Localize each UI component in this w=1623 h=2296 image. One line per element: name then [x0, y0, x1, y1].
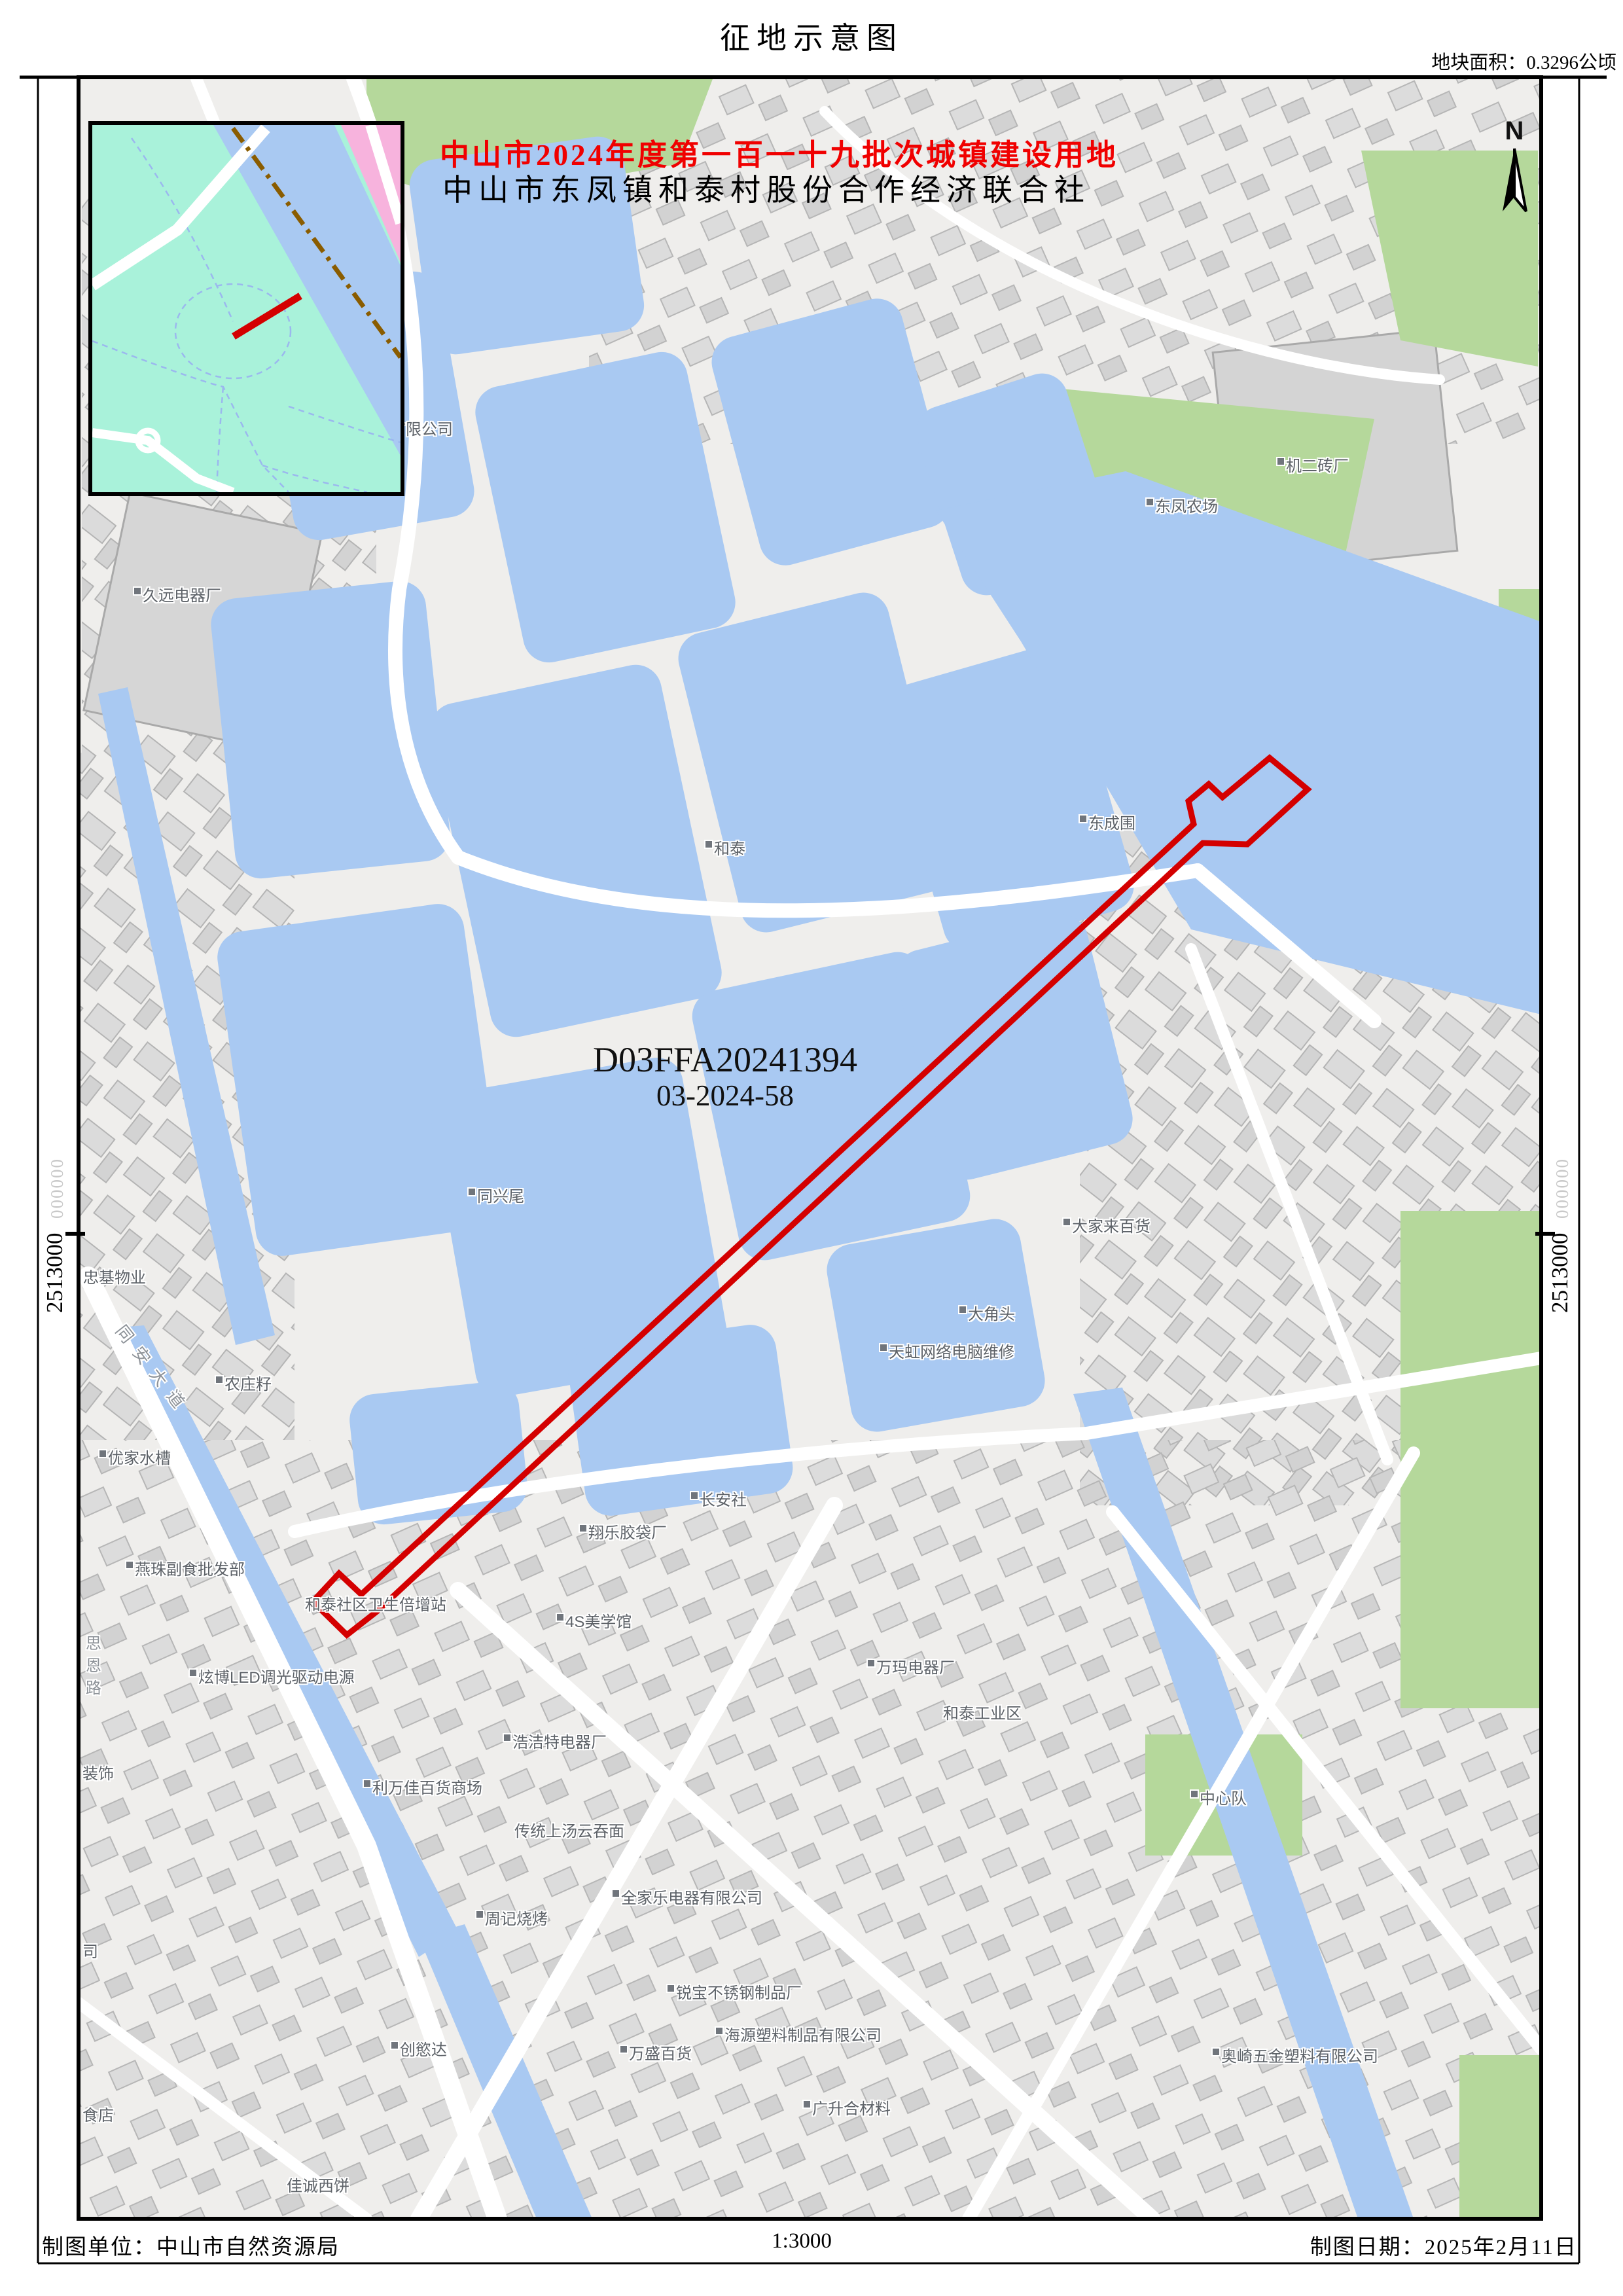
place-marker-icon — [190, 1670, 196, 1676]
place-label: 司 — [82, 1944, 98, 1961]
place-label: 奥崎五金塑料有限公司 — [1213, 2049, 1378, 2066]
parcel-code: D03FFA20241394 — [593, 1039, 857, 1080]
place-marker-icon — [476, 1911, 483, 1918]
place-label: 食店 — [82, 2108, 114, 2125]
land-acquisition-map-page: 征地示意图 地块面积：0.3296公顷 — [0, 0, 1623, 2296]
place-marker-icon — [668, 1985, 674, 1992]
place-marker-icon — [804, 2101, 810, 2108]
plot-area-note: 地块面积：0.3296公顷 — [1431, 47, 1616, 75]
place-marker-icon — [620, 2046, 627, 2053]
place-label: 创慾达 — [391, 2042, 447, 2059]
place-label: 海源塑料制品有限公司 — [716, 2028, 882, 2045]
north-arrow-icon — [1497, 146, 1531, 218]
right-ghost-coord: 000000 — [1552, 1158, 1573, 1219]
place-marker-icon — [1063, 1219, 1070, 1225]
place-marker-icon — [716, 2028, 722, 2034]
place-marker-icon — [469, 1189, 475, 1195]
left-coord-label: 2513000 — [42, 1233, 68, 1314]
locator-inset-map[interactable] — [88, 121, 404, 496]
place-label: 全家乐电器有限公司 — [613, 1890, 762, 1907]
map-canvas[interactable]: 中山市2024年度第一百一十九批次城镇建设用地 中山市东凤镇和泰村股份合作经济联… — [0, 0, 1623, 2296]
place-label: 优家水槽 — [99, 1450, 171, 1467]
place-label: 广升合材料 — [804, 2101, 891, 2118]
applicant-name: 中山市东凤镇和泰村股份合作经济联合社 — [442, 166, 1090, 209]
place-label: 佳诚西饼 — [287, 2178, 349, 2195]
place-marker-icon — [580, 1525, 586, 1532]
place-label: 忠基物业 — [83, 1270, 146, 1287]
place-marker-icon — [1147, 499, 1153, 505]
place-label: 锐宝不锈钢制品厂 — [668, 1985, 802, 2002]
place-label: 大家来百货 — [1063, 1219, 1150, 1236]
place-label: 中心队 — [1191, 1791, 1247, 1808]
parcel-number: 03-2024-58 — [656, 1079, 794, 1113]
place-label: 久远电器厂 — [134, 588, 221, 605]
page-title: 征地示意图 — [0, 14, 1623, 58]
place-label: 同兴尾 — [469, 1189, 524, 1206]
place-marker-icon — [126, 1562, 133, 1568]
place-label: 燕珠副食批发部 — [126, 1562, 245, 1579]
place-label: 万盛百货 — [620, 2046, 692, 2063]
place-label: 思恩路 — [82, 1635, 99, 1702]
map-scale: 1:3000 — [772, 2229, 832, 2253]
place-label: 4S美学馆 — [557, 1614, 632, 1631]
place-label: 天虹网络电脑维修 — [880, 1344, 1014, 1361]
place-marker-icon — [1213, 2049, 1219, 2055]
place-label: 利万佳百货商场 — [364, 1780, 482, 1797]
place-label: 浩洁特电器厂 — [504, 1734, 607, 1751]
place-marker-icon — [959, 1306, 966, 1313]
place-label: 传统上汤云吞面 — [514, 1823, 624, 1840]
place-label: 周记烧烤 — [476, 1911, 548, 1928]
place-marker-icon — [504, 1734, 510, 1741]
map-date: 制图日期：2025年2月11日 — [1310, 2229, 1577, 2261]
right-coord-label: 2513000 — [1547, 1233, 1573, 1314]
place-label: 翔乐胶袋厂 — [580, 1525, 667, 1542]
place-label: 农庄籽 — [216, 1376, 272, 1393]
place-marker-icon — [1277, 458, 1284, 465]
north-arrow: N — [1495, 117, 1534, 221]
place-marker-icon — [134, 588, 141, 594]
place-marker-icon — [557, 1614, 563, 1621]
place-marker-icon — [216, 1376, 223, 1383]
place-label: 和泰 — [705, 841, 745, 858]
place-marker-icon — [364, 1780, 370, 1787]
place-label: 机二砖厂 — [1277, 458, 1349, 475]
place-marker-icon — [705, 841, 712, 848]
place-marker-icon — [613, 1890, 619, 1897]
place-label: 长安社 — [691, 1492, 747, 1509]
place-label: 装饰 — [82, 1766, 114, 1783]
place-label: 东成围 — [1080, 816, 1135, 833]
place-label: 和泰社区卫生倍增站 — [305, 1597, 446, 1614]
left-ghost-coord: 000000 — [47, 1158, 67, 1219]
place-marker-icon — [1080, 816, 1086, 822]
place-marker-icon — [99, 1450, 106, 1457]
inset-graphic — [92, 125, 401, 492]
place-marker-icon — [1191, 1791, 1198, 1797]
place-marker-icon — [880, 1344, 887, 1351]
place-label: 炫博LED调光驱动电源 — [190, 1670, 355, 1687]
map-agency: 制图单位：中山市自然资源局 — [42, 2229, 340, 2261]
place-marker-icon — [691, 1492, 698, 1499]
place-label: 万玛电器厂 — [868, 1660, 955, 1677]
north-label: N — [1495, 117, 1534, 146]
place-label: 和泰工业区 — [943, 1706, 1022, 1723]
place-label: 东凤农场 — [1147, 499, 1218, 516]
place-label: 大角头 — [959, 1306, 1015, 1323]
place-marker-icon — [391, 2042, 398, 2049]
place-marker-icon — [868, 1660, 874, 1666]
